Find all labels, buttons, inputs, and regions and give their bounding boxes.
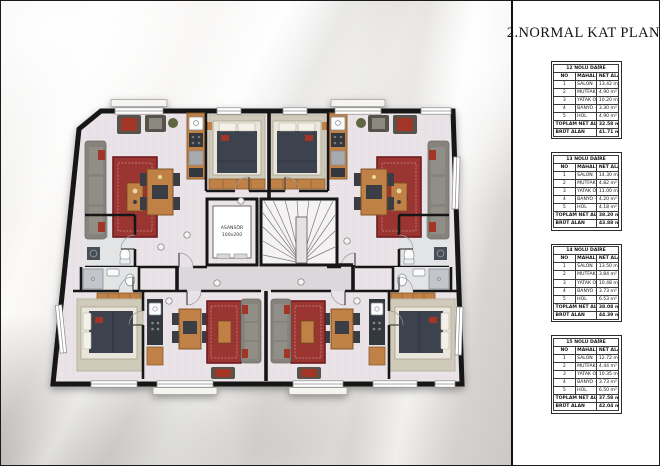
column-header: NET ALAN — [597, 163, 619, 171]
cell-room: SALON — [575, 80, 597, 88]
apartment-tables: 12 NOLU DAİRENOMAHALNET ALAN1SALON13.42 … — [551, 61, 622, 414]
room-row: 2MUTFAK NİŞİ4.44 m² — [554, 362, 619, 370]
table-title: 13 NOLU DAİRE — [554, 155, 619, 163]
cell-room: MUTFAK NİŞİ — [575, 180, 597, 188]
room-row: 5HOL4.18 m² — [554, 204, 619, 212]
cell-no: 3 — [554, 96, 576, 104]
cell-room: MUTFAK NİŞİ — [575, 362, 597, 370]
building: ASANSÖR 100x200 — [53, 100, 463, 395]
cell-no: 3 — [554, 279, 576, 287]
room-row: 1SALON12.72 m² — [554, 354, 619, 362]
table-title: 12 NOLU DAİRE — [554, 64, 619, 72]
cell-area: 4.18 m² — [597, 204, 619, 212]
room-row: 1SALON13.50 m² — [554, 263, 619, 271]
room-row: 3YATAK ODASI11.00 m² — [554, 188, 619, 196]
cell-area: 14.30 m² — [597, 172, 619, 180]
cell-area: 6.53 m² — [597, 295, 619, 303]
total-label: BRÜT ALAN — [554, 403, 597, 411]
cell-room: SALON — [575, 263, 597, 271]
cell-area: 3.73 m² — [597, 287, 619, 295]
room-row: 5HOL4.90 m² — [554, 112, 619, 120]
room-row: 1SALON14.30 m² — [554, 172, 619, 180]
elevator-label: ASANSÖR — [221, 224, 244, 231]
table-title: 15 NOLU DAİRE — [554, 338, 619, 346]
apartment-table: 13 NOLU DAİRENOMAHALNET ALAN1SALON14.30 … — [551, 152, 622, 230]
cell-no: 5 — [554, 204, 576, 212]
room-row: 3YATAK ODASI10.20 m² — [554, 96, 619, 104]
staircase — [261, 199, 337, 265]
room-row: 3YATAK ODASI10.35 m² — [554, 370, 619, 378]
cell-area: 10.20 m² — [597, 96, 619, 104]
column-header: NET ALAN — [597, 346, 619, 354]
total-value: 37.58 m² — [597, 395, 619, 403]
column-header: NO — [554, 255, 576, 263]
cell-area: 13.42 m² — [597, 80, 619, 88]
cell-no: 1 — [554, 80, 576, 88]
total-label: BRÜT ALAN — [554, 311, 597, 319]
total-value: 38.20 m² — [597, 212, 619, 220]
cell-room: HOL — [575, 112, 597, 120]
cell-no: 1 — [554, 172, 576, 180]
cell-no: 1 — [554, 354, 576, 362]
column-header: MAHAL — [575, 163, 597, 171]
table-header-row: NOMAHALNET ALAN — [554, 72, 619, 80]
cell-area: 3.73 m² — [597, 379, 619, 387]
total-label: BRÜT ALAN — [554, 128, 597, 136]
stair-landing — [296, 217, 307, 263]
room-row: 2MUTFAK NİŞİ4.90 m² — [554, 88, 619, 96]
cell-area: 4.20 m² — [597, 196, 619, 204]
room-row: 4BANYO + WC3.73 m² — [554, 287, 619, 295]
total-row: TOPLAM NET ALAN37.58 m² — [554, 395, 619, 403]
total-row: TOPLAM NET ALAN38.08 m² — [554, 303, 619, 311]
column-header: NET ALAN — [597, 72, 619, 80]
page-title: 2.NORMAL KAT PLANI — [507, 25, 660, 42]
cell-room: HOL — [575, 387, 597, 395]
cell-no: 3 — [554, 188, 576, 196]
cell-room: BANYO + WC — [575, 196, 597, 204]
cell-area: 12.72 m² — [597, 354, 619, 362]
room-row: 4BANYO + WC3.30 m² — [554, 104, 619, 112]
column-header: NO — [554, 163, 576, 171]
total-label: TOPLAM NET ALAN — [554, 120, 597, 128]
cell-room: SALON — [575, 172, 597, 180]
corridor-floor — [177, 267, 353, 291]
table-title: 14 NOLU DAİRE — [554, 247, 619, 255]
cell-room: SALON — [575, 354, 597, 362]
cell-area: 4.82 m² — [597, 180, 619, 188]
cell-room: YATAK ODASI — [575, 96, 597, 104]
column-header: MAHAL — [575, 346, 597, 354]
plan-sheet: ASANSÖR 100x200 — [0, 0, 660, 466]
cell-room: HOL — [575, 204, 597, 212]
total-value: 41.71 m² — [597, 128, 619, 136]
apartment-table: 12 NOLU DAİRENOMAHALNET ALAN1SALON13.42 … — [551, 61, 622, 139]
total-label: TOPLAM NET ALAN — [554, 303, 597, 311]
cell-no: 4 — [554, 379, 576, 387]
total-value: 44.39 m² — [597, 311, 619, 319]
cell-area: 4.90 m² — [597, 112, 619, 120]
cell-area: 10.48 m² — [597, 279, 619, 287]
column-header: MAHAL — [575, 72, 597, 80]
cell-no: 2 — [554, 271, 576, 279]
cell-room: BANYO + WC — [575, 287, 597, 295]
apartment-table: 15 NOLU DAİRENOMAHALNET ALAN1SALON12.72 … — [551, 335, 622, 413]
cell-no: 4 — [554, 287, 576, 295]
cell-room: MUTFAK NİŞİ — [575, 271, 597, 279]
total-row: TOPLAM NET ALAN38.20 m² — [554, 212, 619, 220]
right-panel: 2.NORMAL KAT PLANI 12 NOLU DAİRENOMAHALN… — [511, 1, 659, 466]
gross-row: BRÜT ALAN44.39 m² — [554, 311, 619, 319]
cell-room: YATAK ODASI — [575, 370, 597, 378]
table-header-row: NOMAHALNET ALAN — [554, 346, 619, 354]
cell-area: 4.90 m² — [597, 88, 619, 96]
room-row: 4BANYO + WC3.73 m² — [554, 379, 619, 387]
total-value: 38.08 m² — [597, 303, 619, 311]
cell-area: 11.00 m² — [597, 188, 619, 196]
total-value: 43.88 m² — [597, 220, 619, 228]
cell-no: 2 — [554, 88, 576, 96]
cell-area: 6.50 m² — [597, 387, 619, 395]
cell-no: 3 — [554, 370, 576, 378]
room-row: 4BANYO + WC4.20 m² — [554, 196, 619, 204]
room-row: 2MUTFAK NİŞİ4.82 m² — [554, 180, 619, 188]
column-header: NO — [554, 72, 576, 80]
cell-area: 4.44 m² — [597, 362, 619, 370]
cell-room: MUTFAK NİŞİ — [575, 88, 597, 96]
total-value: 42.04 m² — [597, 403, 619, 411]
cell-room: YATAK ODASI — [575, 188, 597, 196]
elevator: ASANSÖR 100x200 — [207, 199, 257, 265]
cell-room: BANYO + WC — [575, 104, 597, 112]
cell-area: 3.30 m² — [597, 104, 619, 112]
total-label: TOPLAM NET ALAN — [554, 212, 597, 220]
cell-no: 5 — [554, 112, 576, 120]
gross-row: BRÜT ALAN42.04 m² — [554, 403, 619, 411]
room-row: 1SALON13.42 m² — [554, 80, 619, 88]
total-row: TOPLAM NET ALAN32.58 m² — [554, 120, 619, 128]
total-value: 32.58 m² — [597, 120, 619, 128]
gross-row: BRÜT ALAN43.88 m² — [554, 220, 619, 228]
cell-room: BANYO + WC — [575, 379, 597, 387]
room-row: 2MUTFAK NİŞİ3.84 m² — [554, 271, 619, 279]
cell-no: 4 — [554, 104, 576, 112]
total-label: TOPLAM NET ALAN — [554, 395, 597, 403]
room-row: 5HOL6.50 m² — [554, 387, 619, 395]
total-label: BRÜT ALAN — [554, 220, 597, 228]
cell-area: 13.50 m² — [597, 263, 619, 271]
cell-area: 10.35 m² — [597, 370, 619, 378]
apartment-table: 14 NOLU DAİRENOMAHALNET ALAN1SALON13.50 … — [551, 244, 622, 322]
cell-no: 4 — [554, 196, 576, 204]
cell-no: 2 — [554, 362, 576, 370]
cell-room: HOL — [575, 295, 597, 303]
room-row: 5HOL6.53 m² — [554, 295, 619, 303]
cell-no: 2 — [554, 180, 576, 188]
cell-no: 5 — [554, 387, 576, 395]
elevator-size-label: 100x200 — [222, 232, 242, 238]
cell-room: YATAK ODASI — [575, 279, 597, 287]
floor-plan: ASANSÖR 100x200 — [1, 1, 513, 466]
gross-row: BRÜT ALAN41.71 m² — [554, 128, 619, 136]
table-header-row: NOMAHALNET ALAN — [554, 163, 619, 171]
column-header: MAHAL — [575, 255, 597, 263]
table-header-row: NOMAHALNET ALAN — [554, 255, 619, 263]
cell-no: 1 — [554, 263, 576, 271]
column-header: NO — [554, 346, 576, 354]
cell-no: 5 — [554, 295, 576, 303]
room-row: 3YATAK ODASI10.48 m² — [554, 279, 619, 287]
column-header: NET ALAN — [597, 255, 619, 263]
cell-area: 3.84 m² — [597, 271, 619, 279]
